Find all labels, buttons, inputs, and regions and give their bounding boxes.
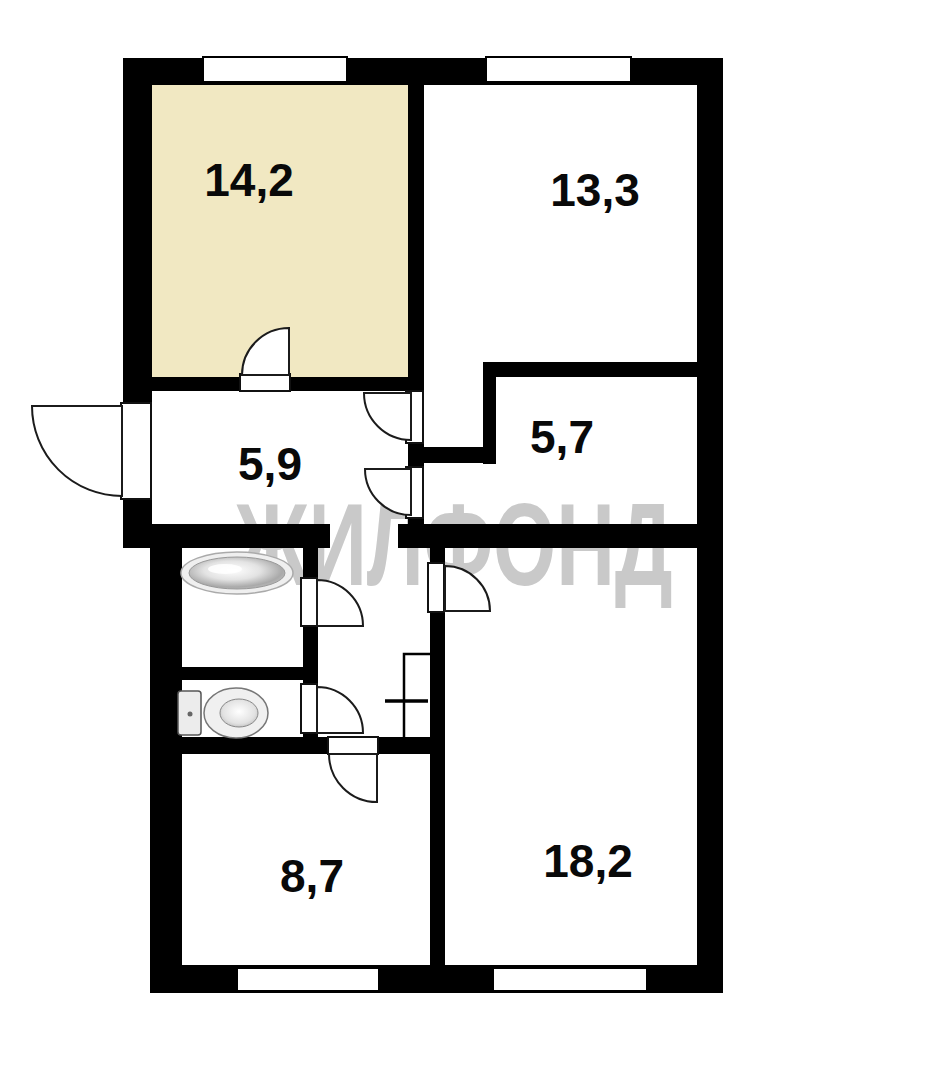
room142-door-swing: [242, 328, 289, 375]
room-label-14-2: 14,2: [204, 153, 294, 207]
plan-symbols: [0, 0, 936, 1080]
room-label-5-9: 5,9: [238, 437, 302, 491]
bathroom-door-swing: [317, 580, 363, 626]
room-label-8-7: 8,7: [280, 849, 344, 903]
hallway-lower-door-swing: [365, 469, 411, 515]
entrance-door-swing: [32, 406, 122, 496]
room-label-13-3: 13,3: [550, 163, 640, 217]
hallway-upper-door-swing: [364, 393, 411, 440]
floor-plan: ЖИЛФОНД: [0, 0, 936, 1080]
room182-door-swing: [445, 566, 490, 611]
room-label-5-7: 5,7: [530, 410, 594, 464]
room-label-18-2: 18,2: [543, 834, 633, 888]
bathtub-icon: [181, 552, 293, 594]
wc-door-swing: [317, 687, 363, 733]
room87-door-swing: [329, 754, 377, 802]
toilet-icon: [178, 688, 268, 738]
